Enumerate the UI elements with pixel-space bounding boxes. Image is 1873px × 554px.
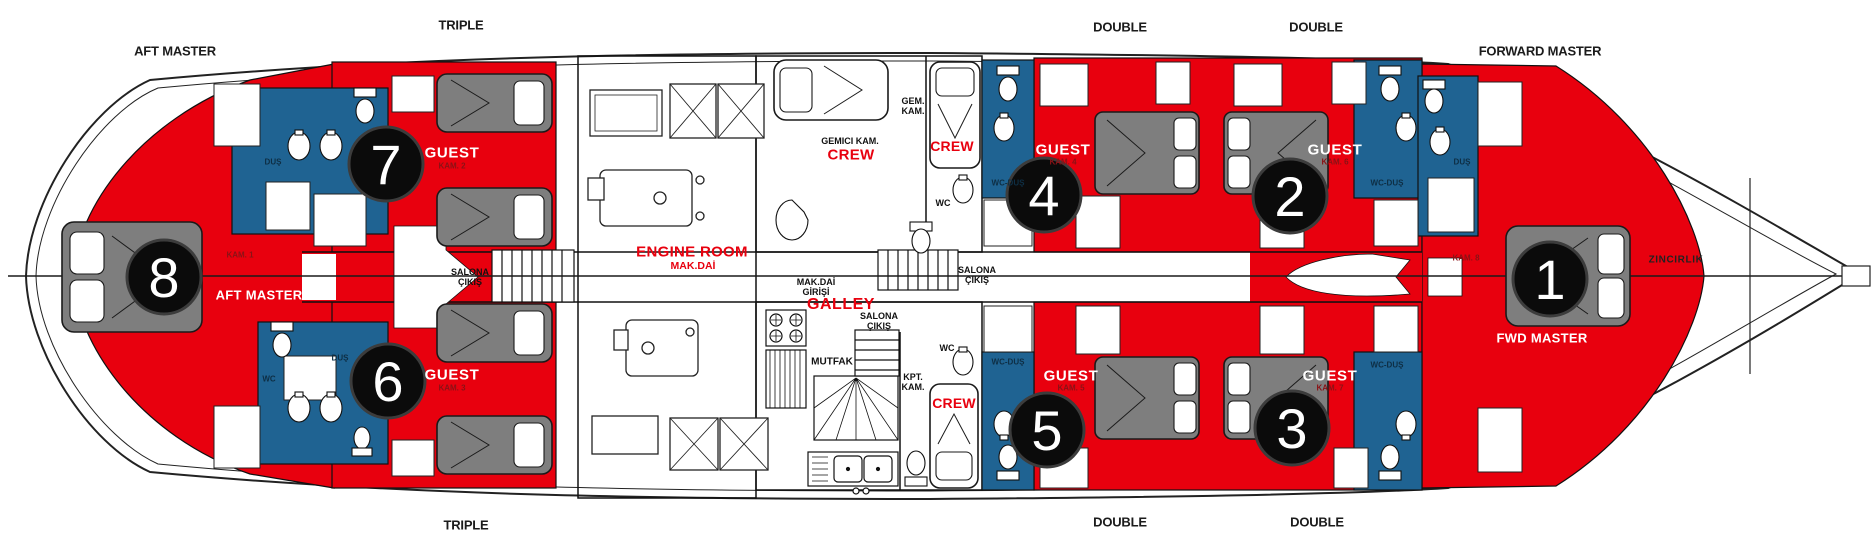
engine-room-label: ENGINE ROOM: [636, 245, 748, 262]
wc-label-bottom: WC: [940, 343, 955, 353]
engine-bottom: [614, 320, 698, 376]
svg-text:7: 7: [370, 133, 401, 196]
toilet: [271, 322, 293, 357]
cabin-7-label: GUEST: [425, 146, 480, 163]
toilet: [905, 451, 927, 486]
salon-exit-fore-label: SALONA ÇIKIŞ: [958, 265, 996, 285]
cabin-7-number: 7: [349, 127, 423, 201]
salon-exit-galley-label: SALONA ÇIKIŞ: [860, 311, 898, 331]
toilet: [354, 88, 376, 123]
toilet: [352, 427, 372, 456]
cabin-8-number: 8: [127, 240, 201, 314]
deck-label-double-bottom-2: DOUBLE: [1290, 516, 1344, 531]
bed-cabin-5: [1095, 357, 1199, 439]
cabin-6-kam: KAM. 3: [438, 385, 465, 394]
captain-cabin-tr-label: KPT. KAM.: [902, 372, 925, 392]
svg-text:8: 8: [148, 246, 179, 309]
salon-exit-aft-label: SALONA ÇIKIŞ: [451, 267, 489, 287]
deck-label-double-top-1: DOUBLE: [1093, 21, 1147, 36]
cabin-1-label: FWD MASTER: [1496, 332, 1587, 347]
engine-room-tr-label: MAK.DAİ: [671, 261, 716, 273]
wc-shower-label-bath-5: WC-DUŞ: [992, 359, 1025, 368]
cabin-1-kam: KAM. 8: [1452, 255, 1479, 264]
wc-shower-label-bath-3: WC-DUŞ: [1371, 362, 1404, 371]
cabin-3-kam: KAM. 7: [1316, 385, 1343, 394]
wc-shower-label-bath-2: WC-DUŞ: [1371, 180, 1404, 189]
deck-label-triple-top: TRIPLE: [438, 19, 483, 34]
bed-cabin-7-b: [437, 188, 552, 246]
cabin-8-kam: KAM. 1: [226, 252, 253, 261]
toilet: [997, 66, 1019, 101]
svg-text:4: 4: [1028, 164, 1059, 227]
cabin-4-kam: KAM. 4: [1049, 159, 1076, 168]
crew-cabin-tr-label: GEMICI KAM.: [821, 136, 879, 146]
svg-text:3: 3: [1276, 397, 1307, 460]
cabin-1-number: 1: [1513, 242, 1587, 316]
toilet: [1379, 445, 1401, 480]
wc-label-bath-6: WC: [262, 376, 275, 385]
deck-label-aft-master: AFT MASTER: [134, 45, 216, 60]
deck-label-triple-bottom: TRIPLE: [443, 519, 488, 534]
deck-plan-drawing: 8 7 6 4 2 5 3 1: [0, 0, 1873, 554]
cabin-8-label: AFT MASTER: [216, 289, 303, 304]
bed-cabin-6-a: [437, 304, 552, 362]
svg-text:5: 5: [1031, 399, 1062, 462]
crew-cabin2-label: CREW: [930, 139, 974, 155]
stairs-galley: [855, 330, 899, 376]
wc-shower-label-bath-4: WC-DUŞ: [992, 180, 1025, 189]
galley-table: [814, 376, 898, 440]
captain-crew-label: CREW: [932, 396, 976, 412]
deck-label-double-bottom-1: DOUBLE: [1093, 516, 1147, 531]
wc-label-top: WC: [936, 198, 951, 208]
bed-cabin-4: [1095, 112, 1199, 194]
deck-plan: 8 7 6 4 2 5 3 1 AFT MASTER TRIPLE DOUBLE…: [0, 0, 1873, 554]
deck-label-forward-master: FORWARD MASTER: [1479, 45, 1602, 60]
stairs-fore: [878, 250, 958, 290]
toilet: [910, 222, 932, 253]
cabin-5-kam: KAM. 5: [1057, 385, 1084, 394]
cabin-4-number: 4: [1007, 158, 1081, 232]
counter: [766, 350, 806, 408]
stove: [766, 310, 806, 346]
cabin-3-number: 3: [1255, 391, 1329, 465]
cabin-2-kam: KAM. 6: [1321, 159, 1348, 168]
cabin-6-label: GUEST: [425, 368, 480, 385]
chain-locker-label: ZINCIRLIK: [1649, 254, 1704, 265]
engine-entry-label: MAK.DAİ GİRİŞİ: [797, 277, 836, 297]
svg-text:1: 1: [1534, 248, 1565, 311]
cabin-7-kam: KAM. 2: [438, 163, 465, 172]
bed-cabin-7-a: [437, 74, 552, 132]
toilet: [1379, 66, 1401, 101]
toilet: [1423, 80, 1445, 113]
cabin-5-number: 5: [1010, 393, 1084, 467]
cabin-6-number: 6: [351, 344, 425, 418]
svg-text:6: 6: [372, 350, 403, 413]
bed-cabin-6-b: [437, 416, 552, 474]
svg-text:2: 2: [1274, 165, 1305, 228]
bed-crew-fore: [774, 60, 888, 120]
engine-top: [588, 170, 704, 226]
shower-label-bath-fm: DUŞ: [1454, 159, 1471, 168]
bowsprit: [1842, 266, 1870, 286]
deck-label-double-top-2: DOUBLE: [1289, 21, 1343, 36]
shower-label-bath-7: DUŞ: [265, 159, 282, 168]
shower-label-bath-6: DUŞ: [332, 355, 349, 364]
cabin-2-number: 2: [1253, 159, 1327, 233]
crew-cabin2-tr-label: GEM. KAM.: [901, 96, 924, 116]
crew-cabin-label: CREW: [827, 148, 874, 165]
galley-tr-label: MUTFAK: [811, 356, 853, 367]
